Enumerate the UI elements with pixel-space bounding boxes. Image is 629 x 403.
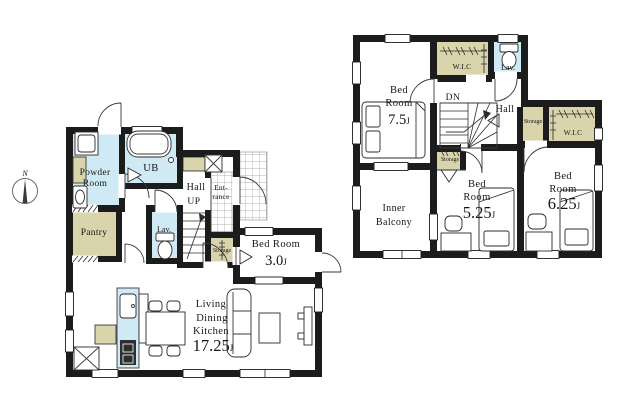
floor2-stairs xyxy=(440,103,497,148)
second-floor-plan: Bed Room 7.5J W.I.C Lav. DN Hall Storage… xyxy=(353,35,603,259)
label-hall: Hall xyxy=(187,182,206,193)
coffee-table-icon xyxy=(259,313,280,343)
label-bedroom-mid-1: Bed xyxy=(468,179,486,190)
label-entrance-2: rance xyxy=(212,192,230,201)
storage-mid-door-marker xyxy=(441,170,457,182)
label-stairs-down: DN xyxy=(446,93,461,103)
label-ldk-2: Dining xyxy=(196,313,228,324)
label-bedroom-right-1: Bed xyxy=(554,171,572,182)
bedroom-door-marker xyxy=(240,250,252,264)
label-storage-mid: Storage xyxy=(441,157,460,163)
label-lavatory2: Lav. xyxy=(501,63,515,72)
label-ldk-size: 17.25J xyxy=(193,336,234,355)
north-needle-icon xyxy=(23,179,28,203)
kitchen-counter xyxy=(117,288,148,368)
entrance-pillar-icon xyxy=(205,155,222,172)
label-bedroom-mid-2: Room xyxy=(463,192,490,203)
floor-plan-canvas: N xyxy=(0,0,629,403)
label-powder-room-1: Powder xyxy=(80,168,111,178)
label-wic-right: W.I.C xyxy=(564,128,583,137)
label-bedroom-name: Bed Room xyxy=(252,239,300,250)
entrance-tile-floor xyxy=(211,172,233,232)
label-pantry: Pantry xyxy=(81,228,108,238)
bed-main-icon xyxy=(362,102,425,158)
label-bedroom-main-2: Room xyxy=(385,98,412,109)
label-storage-hall: Storage xyxy=(524,119,543,125)
compass: N xyxy=(13,169,38,204)
label-bedroom-mid-size: 5.25J xyxy=(463,203,496,222)
label-bedroom-right-size: 6.25J xyxy=(548,194,581,213)
shoe-cabinet xyxy=(183,157,205,171)
label-inner-balcony-1: Inner xyxy=(382,203,405,214)
label-storage: Storage xyxy=(213,248,232,254)
dining-table-icon xyxy=(146,301,185,356)
label-bath: UB xyxy=(143,163,158,174)
label-inner-balcony-2: Balcony xyxy=(376,217,412,228)
washbasin-icon xyxy=(73,186,87,208)
stairs-down-arrow xyxy=(483,110,491,120)
refrigerator-icon xyxy=(74,347,99,370)
desk-right-icon xyxy=(526,214,552,251)
kitchen-sink-icon xyxy=(120,294,136,318)
porch-tile-floor xyxy=(240,152,267,220)
label-hall2: Hall xyxy=(496,104,515,115)
label-bedroom-main-1: Bed xyxy=(390,85,408,96)
cupboard-icon xyxy=(95,325,116,344)
label-stairs-up: UP xyxy=(187,197,200,207)
label-powder-room-2: Room xyxy=(83,179,108,189)
first-floor-plan: Powder Room UB Hall UP Ent- rance Pantry… xyxy=(66,103,342,378)
label-bedroom-size: 3.0J xyxy=(265,253,287,269)
label-wic-top: W.I.C xyxy=(453,62,472,71)
label-entrance-1: Ent- xyxy=(214,183,228,192)
compass-north-label: N xyxy=(21,169,28,178)
label-lavatory: Lav. xyxy=(157,225,171,234)
washing-machine-icon xyxy=(75,132,98,155)
stove-icon xyxy=(120,340,136,365)
floor-plan-drawing: N xyxy=(0,0,629,403)
label-ldk-1: Living xyxy=(196,299,227,310)
tv-board-icon xyxy=(298,307,312,345)
